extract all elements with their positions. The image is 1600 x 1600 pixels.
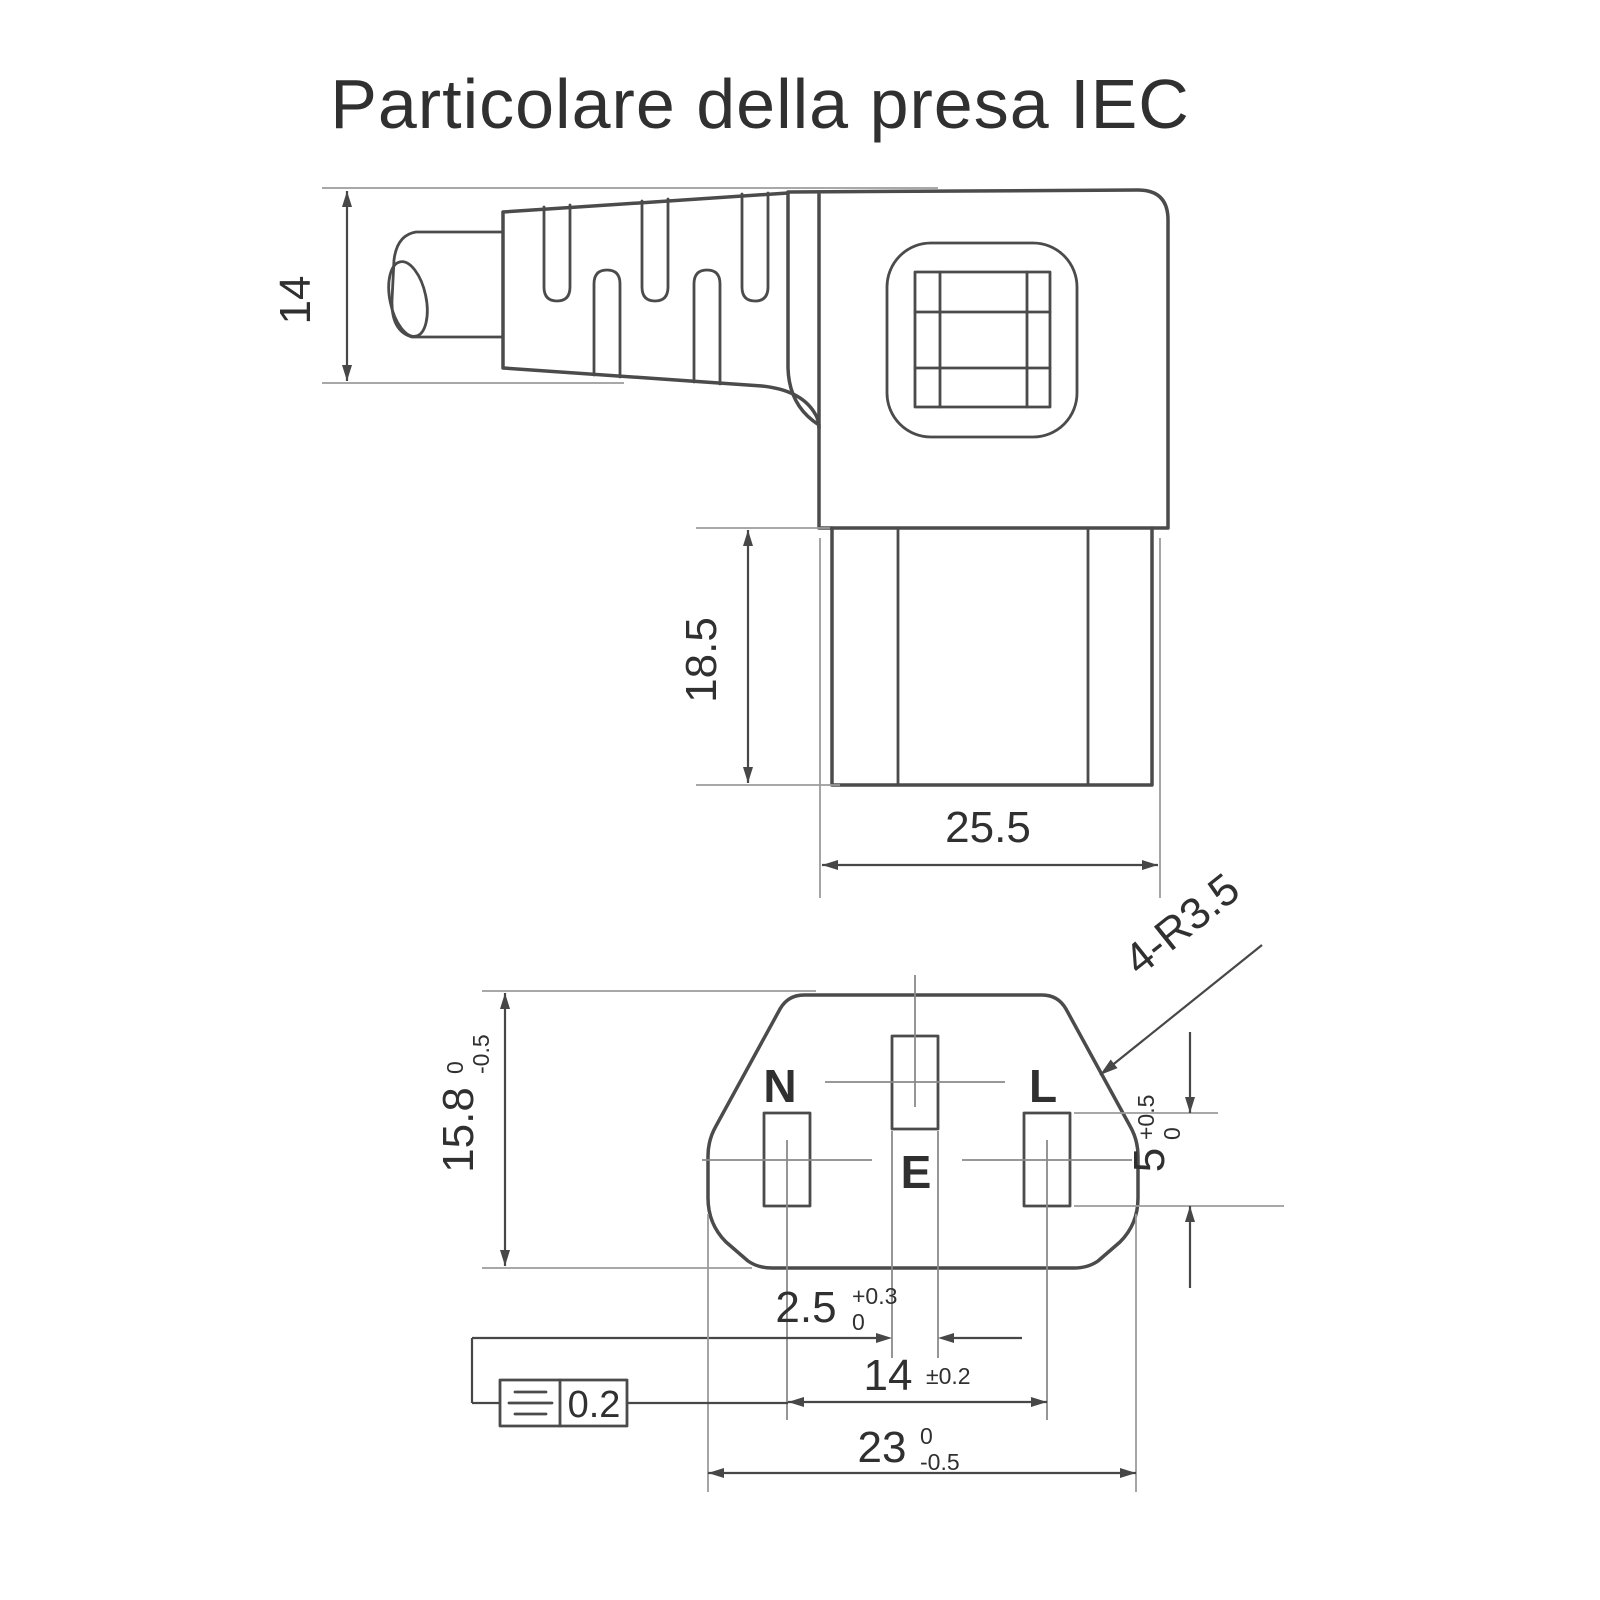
dimension-pin-spacing: 14 ±0.2 <box>788 1351 1047 1407</box>
dim-cable-height-value: 14 <box>271 276 320 325</box>
dim-face-width-value: 23 <box>858 1423 907 1472</box>
dim-face-height-sup: 0 <box>442 1061 468 1074</box>
dim-shroud-height-value: 18.5 <box>677 617 726 703</box>
technical-drawing-page: Particolare della presa IEC <box>0 0 1600 1600</box>
corner-radius-label: 4-R3.5 <box>1115 864 1249 985</box>
pin-neutral-label: N <box>763 1060 796 1112</box>
dim-face-height-sub: -0.5 <box>468 1034 494 1074</box>
latch-detail <box>887 243 1077 437</box>
pin-line: L <box>962 1060 1132 1420</box>
symmetry-tolerance-frame: 0.2 <box>472 1338 788 1426</box>
dim-face-width-sub: -0.5 <box>920 1449 960 1475</box>
socket-shroud <box>832 528 1152 785</box>
dim-slot-height-value: 5 <box>1125 1148 1174 1172</box>
dim-slot-height-sub: 0 <box>1159 1127 1185 1140</box>
dim-face-height-value: 15.8 <box>434 1087 483 1173</box>
connector-body <box>788 190 1168 528</box>
dimension-face-width: 23 0 -0.5 <box>708 1214 1136 1492</box>
dim-slot-width-sup: +0.3 <box>852 1283 897 1309</box>
strain-relief-slot <box>594 270 620 377</box>
cable-cut-end <box>382 258 433 340</box>
face-view: N E L 15.8 0 -0.5 <box>434 864 1284 1492</box>
side-view: 14 18.5 25.5 <box>271 188 1168 898</box>
strain-relief-slot <box>694 270 720 384</box>
strain-relief <box>503 193 819 428</box>
dim-face-width-sup: 0 <box>920 1423 933 1449</box>
dim-shroud-width-value: 25.5 <box>945 803 1031 852</box>
strain-relief-slot <box>544 205 570 301</box>
dim-slot-height-sup: +0.5 <box>1133 1095 1159 1140</box>
dimension-shroud-height: 18.5 <box>677 528 840 785</box>
cable <box>382 232 503 340</box>
pin-neutral: N <box>702 1060 872 1420</box>
dim-pin-spacing-tol: ±0.2 <box>926 1363 971 1389</box>
symmetry-icon <box>509 1392 552 1414</box>
strain-relief-slot <box>742 193 768 301</box>
dim-slot-width-value: 2.5 <box>775 1283 836 1332</box>
pin-earth-label: E <box>901 1146 932 1198</box>
tolerance-value: 0.2 <box>568 1384 621 1426</box>
strain-relief-slot <box>642 199 668 301</box>
dimension-slot-width: 2.5 +0.3 0 <box>472 1283 1022 1343</box>
dim-pin-spacing-value: 14 <box>864 1351 913 1400</box>
dimension-face-height: 15.8 0 -0.5 <box>434 991 816 1268</box>
corner-radius-callout: 4-R3.5 <box>1100 864 1262 1075</box>
iec-socket-drawing: Particolare della presa IEC <box>0 0 1600 1600</box>
pin-line-label: L <box>1029 1060 1057 1112</box>
dimension-cable-height: 14 <box>271 188 938 383</box>
drawing-title: Particolare della presa IEC <box>330 65 1190 143</box>
dim-slot-width-sub: 0 <box>852 1309 865 1335</box>
dimension-shroud-width: 25.5 <box>820 538 1160 898</box>
